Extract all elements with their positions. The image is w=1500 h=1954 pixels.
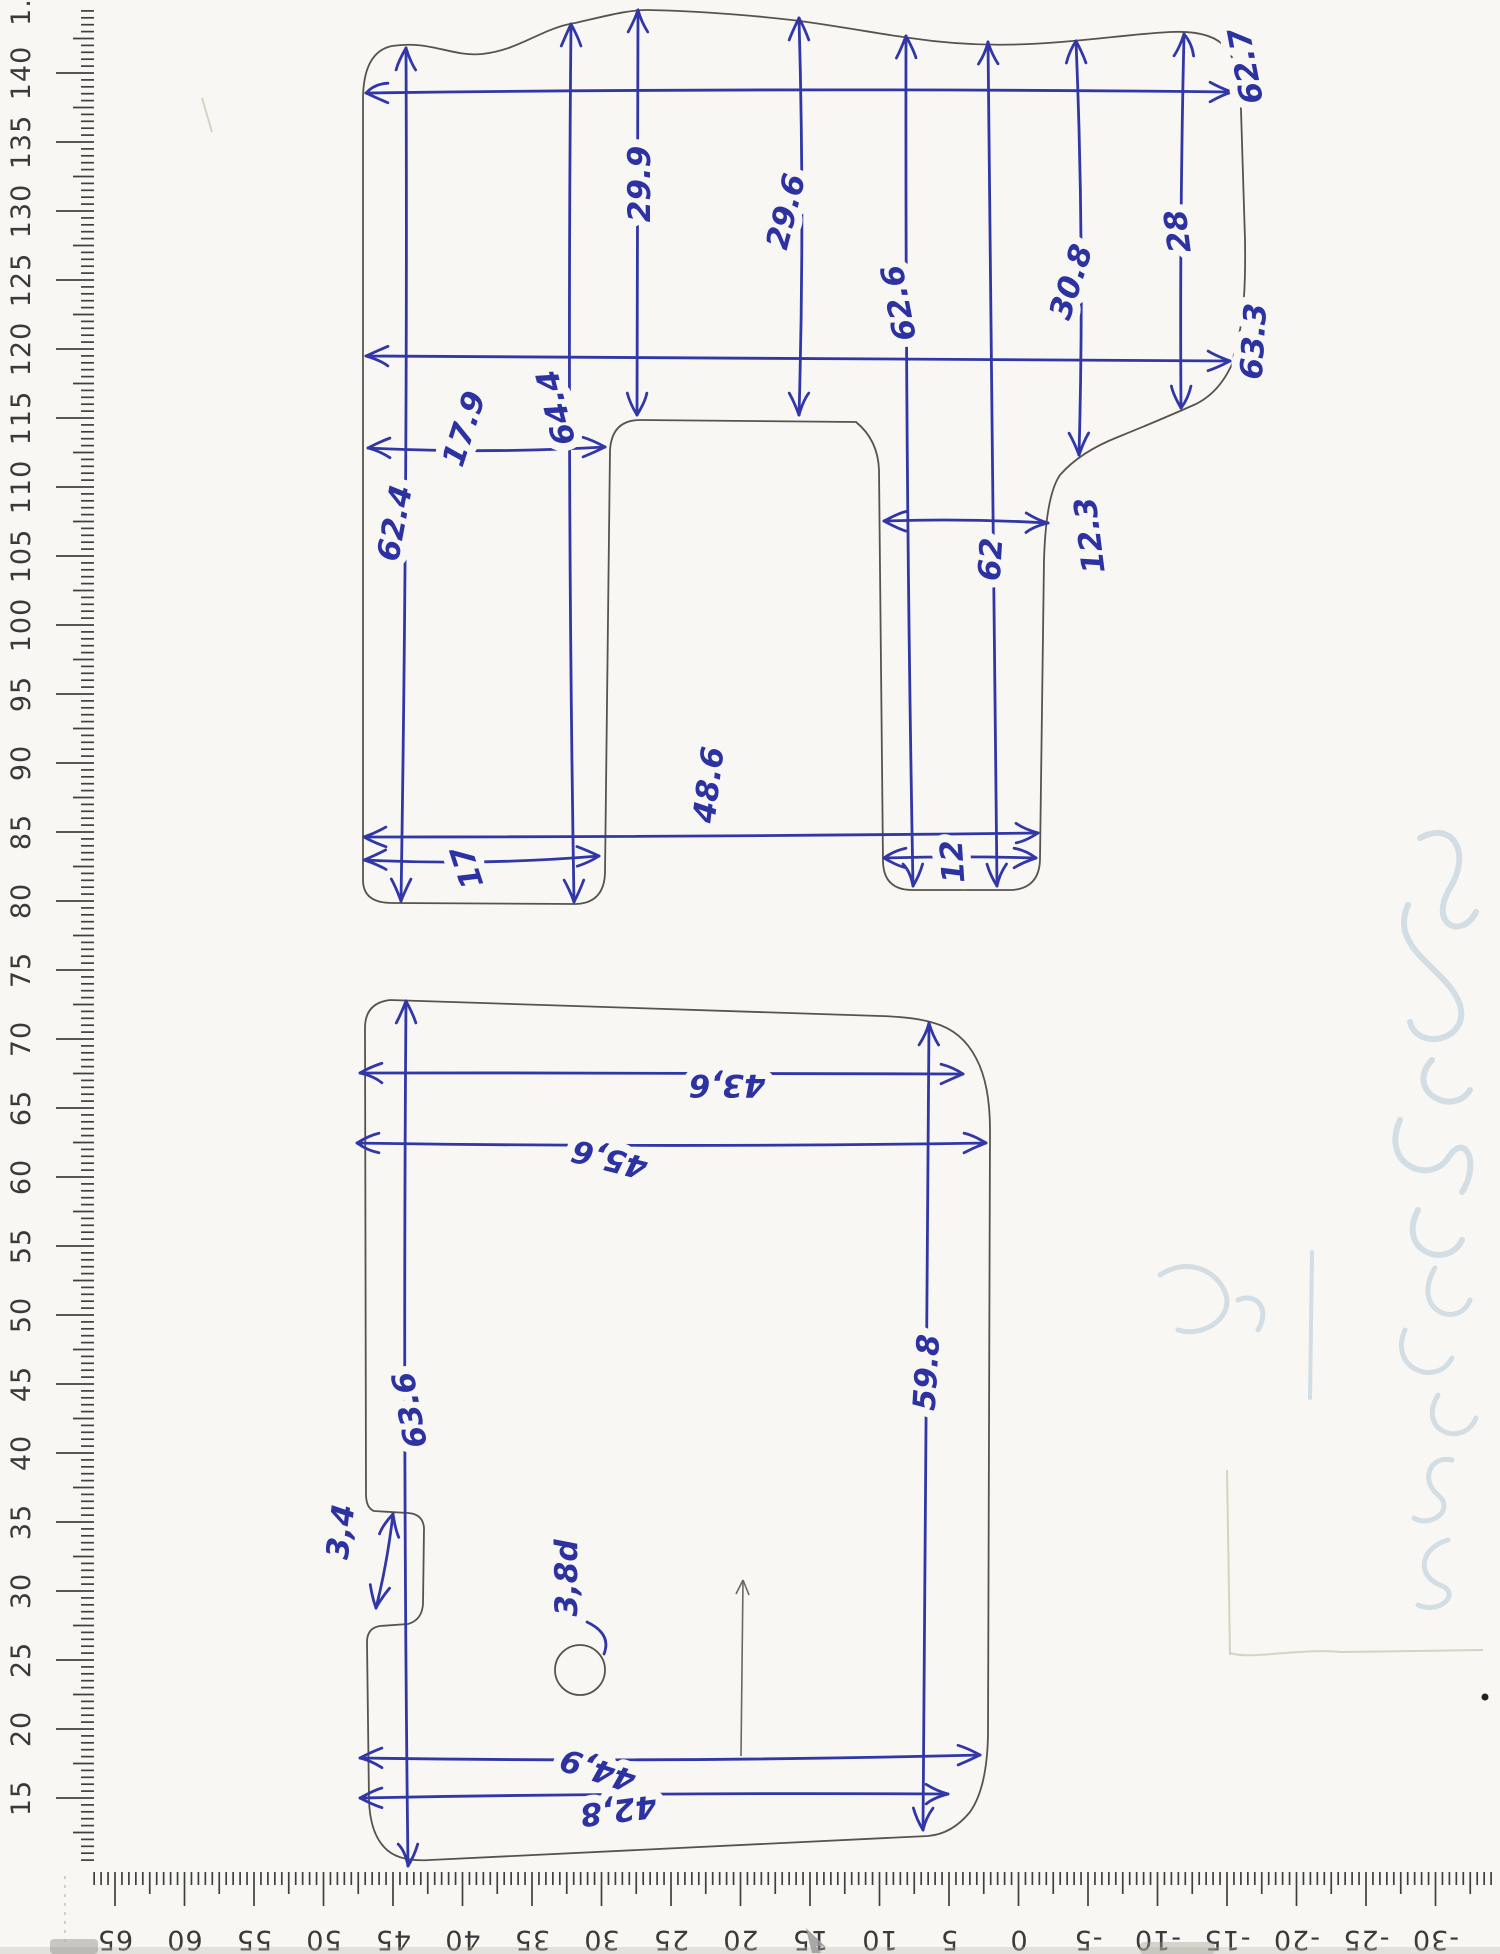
left-ruler-number: 55 xyxy=(6,1228,37,1264)
dimension-arrowhead xyxy=(368,438,390,448)
dimension-arrowhead xyxy=(360,1063,382,1073)
dimension-arrowhead xyxy=(360,1073,382,1083)
left-ruler-number: 40 xyxy=(6,1435,37,1471)
dimension-line xyxy=(357,1143,986,1145)
dimension-arrowhead xyxy=(964,1133,986,1143)
dimension-width-bottom-1: 44,9 xyxy=(360,1741,980,1799)
left-ruler-number: 125 xyxy=(6,253,37,308)
dimension-value: 29.6 xyxy=(759,170,813,253)
dimension-value: 12.3 xyxy=(1067,495,1112,575)
dimension-arrowhead xyxy=(896,36,906,58)
left-ruler-number: 65 xyxy=(6,1090,37,1126)
dimension-arrowhead xyxy=(637,393,647,415)
faint-rectangle-corner xyxy=(202,98,1489,1701)
dimension-arrowhead xyxy=(1016,823,1038,833)
dimension-value: 3,4 xyxy=(320,1502,363,1561)
dimension-value: 43,6 xyxy=(689,1067,767,1103)
dimension-line xyxy=(360,1073,963,1074)
bottom-ruler: 65605550454035302520151050-5-10-15-20-25… xyxy=(94,1872,1491,1954)
left-ruler-number: 70 xyxy=(6,1021,37,1057)
dimension-value: 17 xyxy=(444,841,492,894)
dimension-arrowhead xyxy=(577,847,599,856)
hole-label-leader xyxy=(587,1622,606,1654)
dimension-width-top-2: 45,6 xyxy=(357,1132,986,1186)
dimension-value: 64.4 xyxy=(529,366,583,449)
dimension-arrowhead xyxy=(1069,433,1079,455)
left-ruler-number: 85 xyxy=(6,814,37,850)
dimension-value: 63.6 xyxy=(385,1369,435,1451)
dimension-line xyxy=(366,90,1232,93)
left-ruler-number: 100 xyxy=(6,598,37,653)
dimension-arrowhead xyxy=(913,864,923,886)
left-ruler-number: 130 xyxy=(6,184,37,239)
dimension-foot1-width: 17 xyxy=(364,841,599,894)
dimension-value: 17.9 xyxy=(436,387,494,471)
dimension-arrowhead xyxy=(571,24,581,46)
left-ruler-number: 15 xyxy=(6,1780,37,1816)
dimension-arrowhead xyxy=(913,1808,923,1830)
dimension-arrowhead xyxy=(638,10,648,32)
dimension-arrowhead xyxy=(789,393,799,415)
dimension-line xyxy=(401,48,406,901)
dimension-value: 45,6 xyxy=(568,1132,652,1186)
extra-annotations: 3,8d xyxy=(549,1539,749,1756)
pencil-slash xyxy=(202,98,212,132)
dimension-arrowhead xyxy=(366,346,388,356)
dimension-arrowhead xyxy=(1208,361,1230,371)
dimension-arrowhead xyxy=(364,850,386,860)
dimension-line xyxy=(366,356,1230,361)
dimension-height-left: 63.6 xyxy=(385,1001,435,1866)
dimension-arrowhead xyxy=(364,837,386,847)
left-ruler-number: 80 xyxy=(6,883,37,919)
hole-diameter-label: 3,8d xyxy=(549,1539,585,1617)
ink-dot xyxy=(1482,1694,1489,1701)
dimension-arrowhead xyxy=(941,1064,963,1074)
dimension-foot2-width: 12 xyxy=(884,839,1036,884)
top-shape-outline xyxy=(363,10,1245,904)
dimension-arrowhead xyxy=(357,1133,379,1143)
dimension-arrowhead xyxy=(926,1794,948,1804)
dimension-arrowhead xyxy=(408,1844,418,1866)
dimension-line xyxy=(569,24,574,902)
dimension-arrowhead xyxy=(366,93,388,103)
dimension-arrowhead xyxy=(929,1023,939,1045)
dimension-value: 30.8 xyxy=(1043,240,1101,324)
stray-pencil-line xyxy=(741,1580,743,1756)
dimension-width-feet: 48.6 xyxy=(364,745,1038,847)
left-ruler-number: 120 xyxy=(6,322,37,377)
dimension-arrowhead xyxy=(884,521,906,531)
bottom-shape-outline xyxy=(365,1000,990,1860)
dimension-height-4: 62 xyxy=(972,42,1011,886)
dimension-top-to-slot-1: 29.9 xyxy=(622,10,658,415)
dimension-width-top: 62.7 xyxy=(366,25,1271,107)
left-ruler: 1401351301251201151101051009590858075706… xyxy=(6,0,94,1860)
left-ruler-number: 90 xyxy=(6,745,37,781)
dimension-arrowhead xyxy=(941,1074,963,1084)
dimension-arrowhead xyxy=(1181,386,1191,408)
left-ruler-number: 50 xyxy=(6,1297,37,1333)
dimension-height-1: 62.4 xyxy=(370,48,420,901)
dimension-line xyxy=(360,1755,980,1760)
dimension-arrowhead xyxy=(574,880,584,902)
dimension-value: 62.4 xyxy=(370,482,420,564)
dimension-arrowhead xyxy=(958,1745,980,1755)
dimension-width-top-1: 43,6 xyxy=(360,1063,963,1103)
dimension-arrowhead xyxy=(370,1585,376,1608)
dimension-arrowhead xyxy=(997,864,1007,886)
left-ruler-number: 30 xyxy=(6,1573,37,1609)
bottom-shape-dimensions: 43,645,663.659.844,942,83,4 xyxy=(320,1001,986,1866)
dimension-value: 44,9 xyxy=(556,1741,641,1799)
dimension-arrowhead xyxy=(364,827,386,837)
top-shape-dimensions: 62.763.317.912.348.6171262.464.429.929.6… xyxy=(364,10,1274,902)
dimension-line xyxy=(988,42,997,886)
scanned-sketch-page: 1401351301251201151101051009590858075706… xyxy=(0,0,1500,1954)
left-ruler-number: 115 xyxy=(6,391,37,446)
left-ruler-number: 60 xyxy=(6,1159,37,1195)
dimension-height-2: 64.4 xyxy=(529,24,583,902)
dimension-arrowhead xyxy=(1026,523,1048,533)
dimension-arrowhead xyxy=(1014,858,1036,868)
dimension-top-to-slot-2: 29.6 xyxy=(759,18,813,415)
hole-outline xyxy=(555,1645,605,1695)
dimension-arrowhead xyxy=(628,10,638,32)
dimension-value: 12 xyxy=(934,839,973,884)
dimension-width-bottom-2: 42,8 xyxy=(360,1784,948,1832)
left-ruler-number: 45 xyxy=(6,1366,37,1402)
left-ruler-number: 20 xyxy=(6,1711,37,1747)
dimension-arrowhead xyxy=(391,879,401,901)
dimension-arrowhead xyxy=(406,1001,416,1023)
dimension-value: 48.6 xyxy=(686,745,731,826)
dimension-top-to-curve-1: 30.8 xyxy=(1043,41,1101,455)
dimension-value: 29.9 xyxy=(622,146,658,223)
dimension-value: 63.3 xyxy=(1234,302,1275,381)
dimension-arrowhead xyxy=(627,393,637,415)
dimension-width-mid: 63.3 xyxy=(366,302,1274,381)
dimension-arrowhead xyxy=(396,48,406,70)
dimension-arrowhead xyxy=(1066,41,1076,63)
dimension-arrowhead xyxy=(393,1514,399,1537)
left-ruler-number: 25 xyxy=(6,1642,37,1678)
left-ruler-number: 105 xyxy=(6,529,37,584)
sketch-canvas: 1401351301251201151101051009590858075706… xyxy=(0,0,1500,1954)
dimension-arrowhead xyxy=(360,1748,382,1758)
dimension-arrowhead xyxy=(789,18,799,40)
dimension-value: 28 xyxy=(1158,208,1199,255)
left-ruler-number: 140 xyxy=(6,46,37,101)
ghost-writing xyxy=(1160,833,1476,1608)
left-ruler-number: 135 xyxy=(6,115,37,170)
dimension-value: 62 xyxy=(972,537,1011,582)
dimension-arrowhead xyxy=(360,1798,382,1808)
left-ruler-number: 95 xyxy=(6,676,37,712)
dimension-arrowhead xyxy=(1210,92,1232,102)
dimension-arrowhead xyxy=(583,437,605,447)
left-ruler-number: 75 xyxy=(6,952,37,988)
dimension-value: 59.8 xyxy=(907,1333,948,1412)
left-ruler-number: 35 xyxy=(6,1504,37,1540)
dimension-arrowhead xyxy=(1184,34,1194,56)
dimension-notch-size: 3,4 xyxy=(320,1502,399,1608)
dimension-line xyxy=(906,36,913,886)
left-ruler-number: 110 xyxy=(6,460,37,515)
left-ruler-number-partial: 1. xyxy=(6,0,37,26)
dimension-line xyxy=(364,833,1038,837)
dimension-value: 62.6 xyxy=(874,262,924,344)
